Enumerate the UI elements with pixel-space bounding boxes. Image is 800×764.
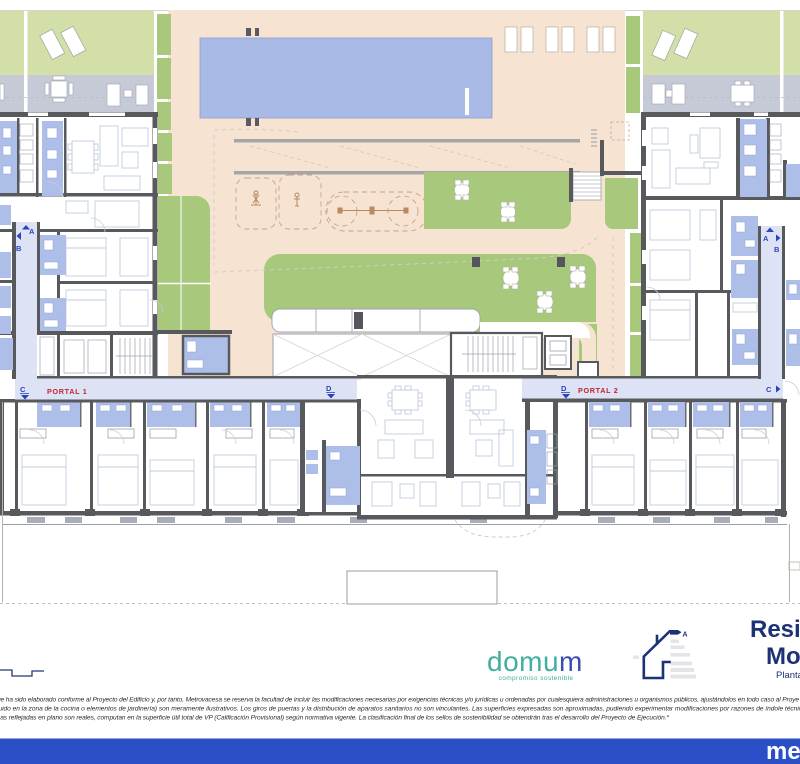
svg-text:Mont: Mont [766,643,800,670]
svg-text:zas reflejadas en plano son re: zas reflejadas en plano son reales, comp… [0,715,669,722]
svg-text:domum: domum [487,646,583,677]
svg-text:Reside: Reside [750,616,800,643]
svg-text:C: C [20,385,26,394]
svg-text:D: D [326,384,332,393]
svg-text:Planta: Planta [776,670,800,681]
svg-text:A: A [683,632,688,639]
svg-text:compromiso sostenible: compromiso sostenible [499,675,574,682]
svg-text:A: A [29,227,35,236]
svg-text:luido en la zona de la cocina: luido en la zona de la cocina o elemento… [0,706,800,713]
svg-text:B: B [16,244,22,253]
svg-text:D: D [561,384,567,393]
svg-text:B: B [774,245,780,254]
svg-text:A: A [763,234,769,243]
svg-text:ue ha sido elaborado conforme: ue ha sido elaborado conforme al Proyect… [0,697,799,704]
svg-text:metrovacesa: metrovacesa [766,738,800,764]
svg-text:PORTAL 1: PORTAL 1 [47,387,87,396]
svg-text:PORTAL 2: PORTAL 2 [578,386,618,395]
svg-text:C: C [766,385,772,394]
